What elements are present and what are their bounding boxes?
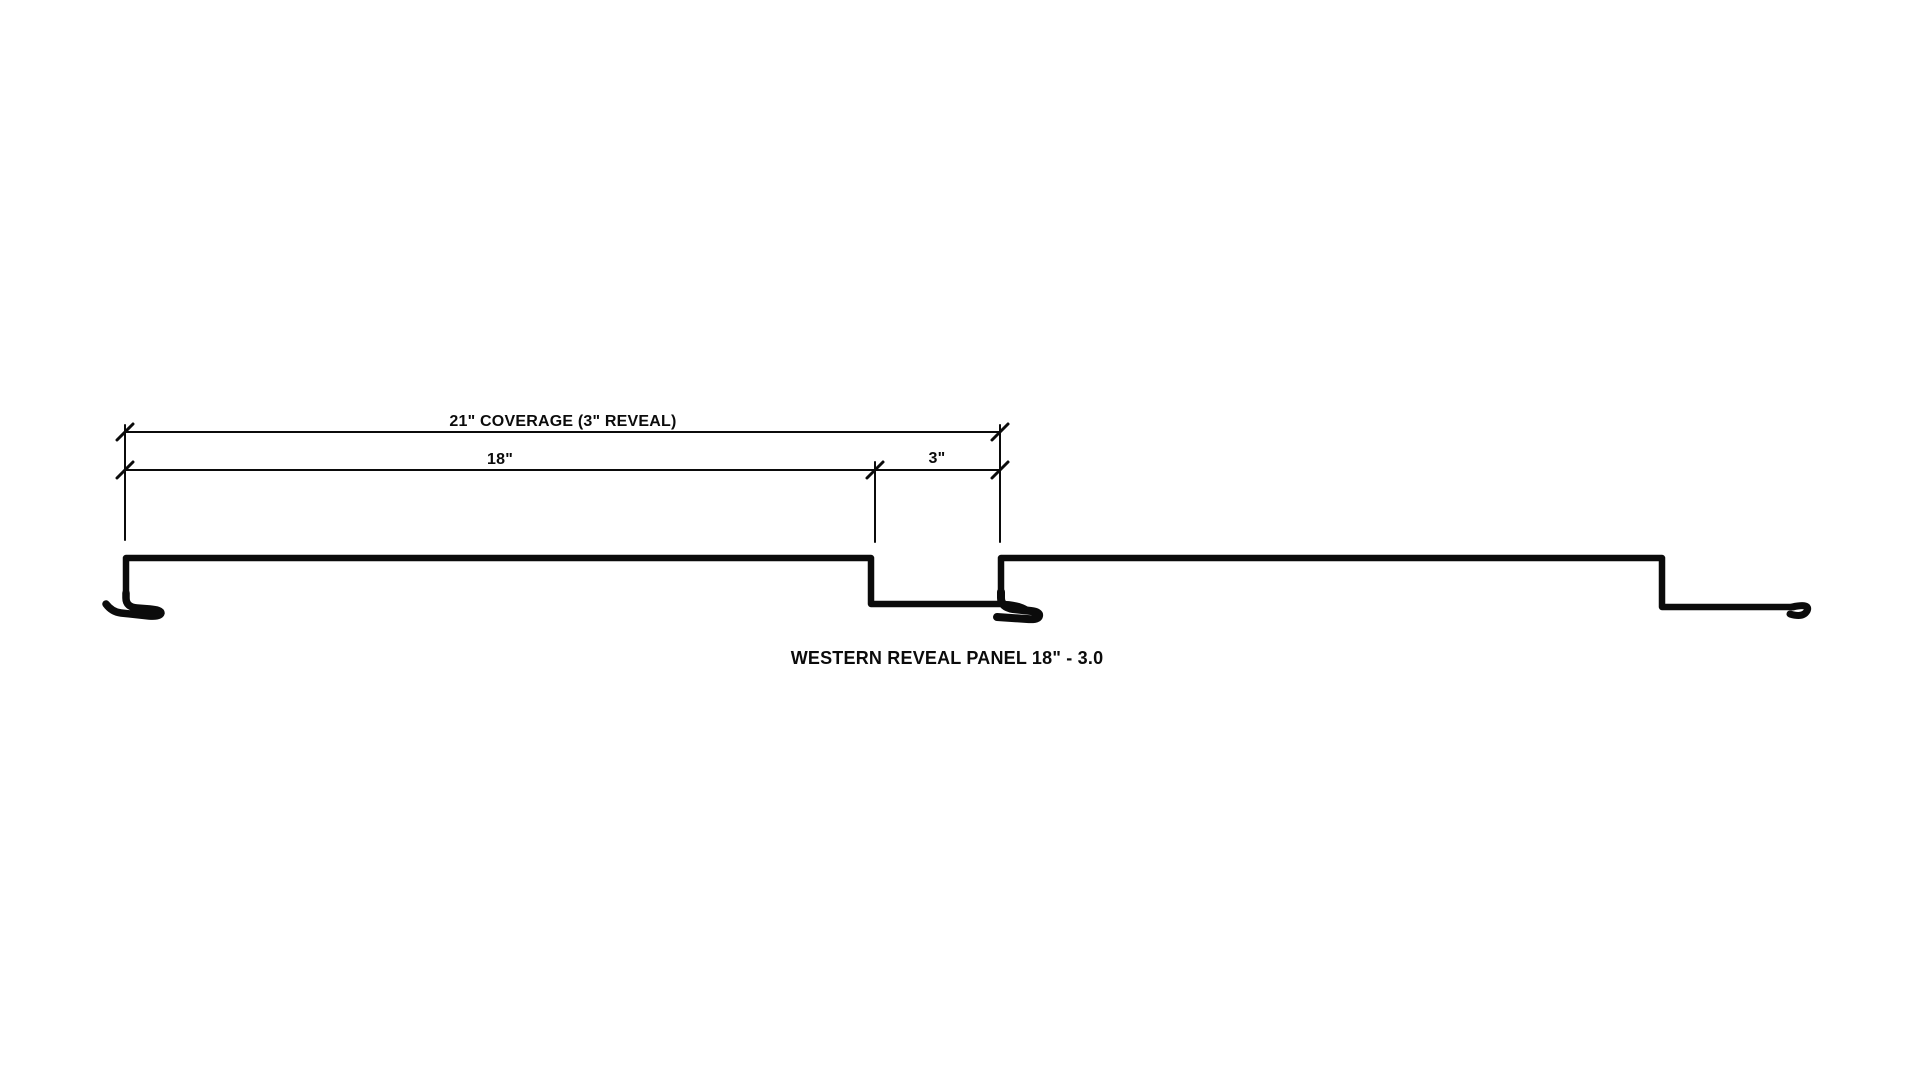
panel-right-profile: [1001, 558, 1794, 607]
dimension-linework: [117, 424, 1008, 542]
reveal-dimension-label: 3": [929, 450, 946, 467]
panel-left-profile: [126, 558, 1027, 610]
panel-left-hem-hook: [106, 593, 161, 616]
coverage-dimension-label: 21" COVERAGE (3" REVEAL): [449, 413, 676, 430]
panel-end-curl: [1790, 606, 1808, 616]
drawing-canvas: 21" COVERAGE (3" REVEAL) 18" 3" WESTERN …: [0, 0, 1920, 1080]
drawing-labels: 21" COVERAGE (3" REVEAL) 18" 3" WESTERN …: [449, 413, 1103, 668]
panel-width-dimension-label: 18": [487, 451, 513, 468]
panel-interlock-hem: [997, 592, 1039, 619]
drawing-title: WESTERN REVEAL PANEL 18" - 3.0: [791, 648, 1104, 668]
panel-profile-linework: [106, 558, 1808, 619]
panel-profile-drawing: 21" COVERAGE (3" REVEAL) 18" 3" WESTERN …: [0, 0, 1920, 1080]
